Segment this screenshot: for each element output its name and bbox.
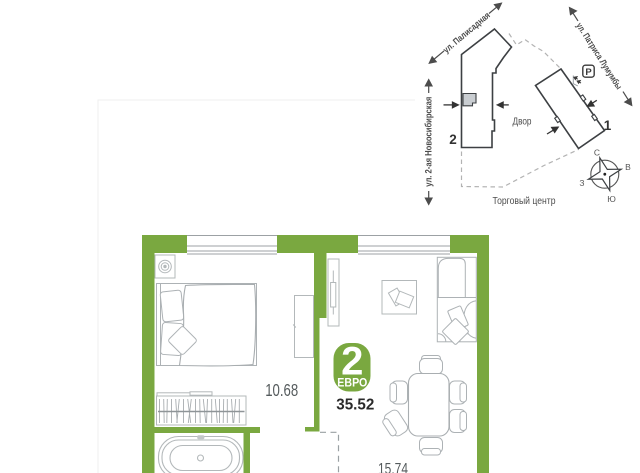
svg-text:С: С [594, 148, 600, 158]
svg-text:10.68: 10.68 [265, 380, 298, 400]
svg-text:35.52: 35.52 [336, 397, 374, 414]
svg-text:1: 1 [604, 118, 612, 133]
svg-text:ул. 2-ая Новосибирская: ул. 2-ая Новосибирская [424, 97, 434, 187]
svg-text:Двор: Двор [513, 116, 532, 128]
svg-text:2: 2 [449, 132, 457, 147]
svg-text:15.74: 15.74 [378, 461, 408, 473]
svg-text:Ю: Ю [607, 194, 616, 204]
svg-text:ЕВРО: ЕВРО [337, 378, 367, 390]
svg-text:В: В [625, 162, 631, 172]
svg-text:Торговый центр: Торговый центр [493, 195, 556, 207]
svg-text:З: З [579, 178, 584, 188]
svg-text:P: P [585, 67, 592, 78]
